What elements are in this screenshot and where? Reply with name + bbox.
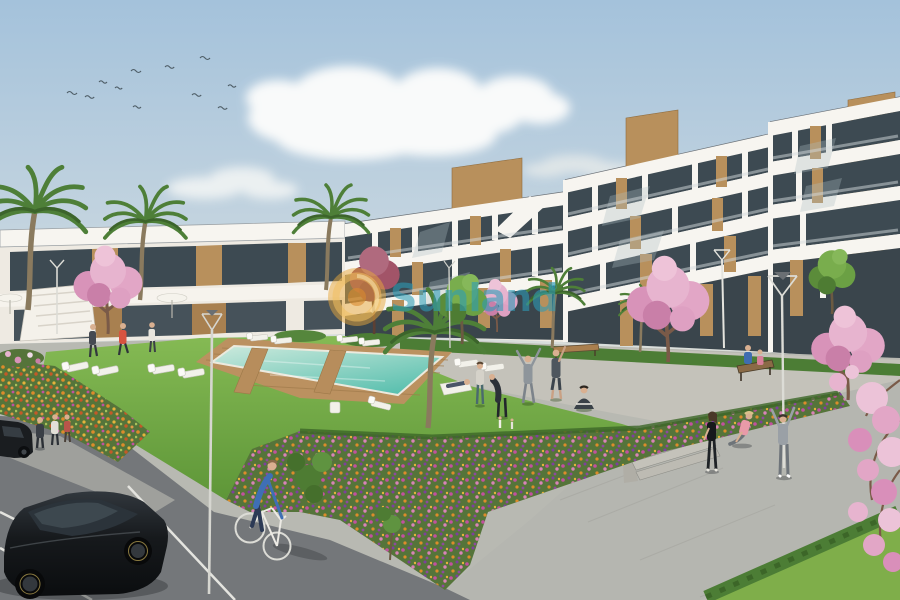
apartment-block-left (0, 221, 345, 344)
pool-chair (330, 402, 340, 413)
property-render-image: Sunland ® (0, 0, 900, 600)
logo-core (348, 288, 366, 306)
watermark: Sunland ® (328, 268, 557, 326)
watermark-registered-mark: ® (549, 283, 557, 293)
watermark-logo (328, 268, 386, 326)
watermark-brand-text: Sunland (390, 276, 557, 320)
parked-car-main (0, 491, 168, 600)
section-edge-1 (563, 180, 568, 342)
section-edge-2 (768, 122, 773, 352)
render-scene: Sunland ® (0, 0, 900, 600)
